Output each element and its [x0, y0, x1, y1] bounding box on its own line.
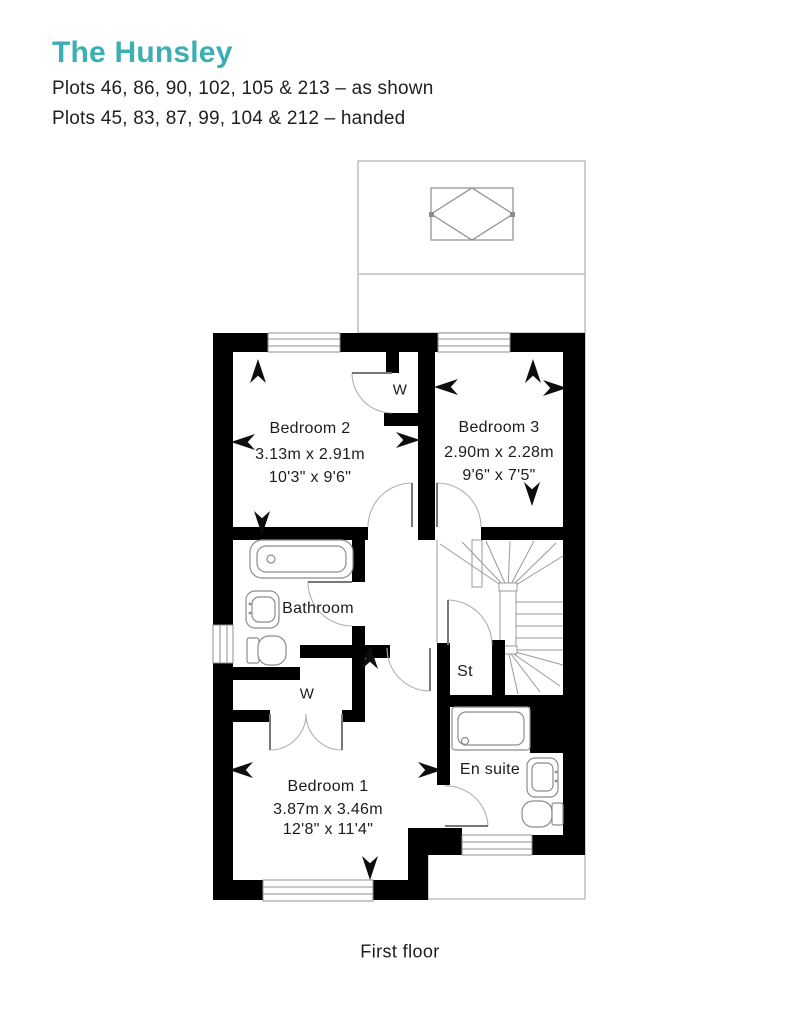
ensuite-toilet-icon: [522, 801, 563, 827]
ensuite-sink-icon: [527, 758, 558, 797]
storage-label: St: [457, 663, 473, 681]
bedroom1-imperial: 12'8" x 11'4": [283, 821, 373, 839]
bedroom2-window: [268, 333, 340, 352]
bedroom2-label: Bedroom 2: [270, 420, 351, 438]
wardrobe-top-label: W: [393, 382, 407, 399]
bathroom-side-window: [213, 625, 233, 663]
floor-plan-svg: [0, 0, 800, 1036]
bathroom-label: Bathroom: [282, 600, 354, 618]
bedroom3-metric: 2.90m x 2.28m: [444, 444, 554, 462]
bathroom-sink-icon: [246, 591, 279, 628]
bedroom3-imperial: 9'6" x 7'5": [462, 467, 535, 485]
bedroom3-window: [438, 333, 510, 352]
bathroom-toilet-icon: [247, 636, 286, 665]
bedroom1-metric: 3.87m x 3.46m: [273, 801, 383, 819]
bedroom3-label: Bedroom 3: [459, 419, 540, 437]
ensuite-label: En suite: [460, 761, 520, 779]
bedroom2-metric: 3.13m x 2.91m: [255, 446, 365, 464]
bedroom1-window: [263, 880, 373, 901]
floor-caption: First floor: [360, 942, 439, 963]
ensuite-window: [462, 835, 532, 855]
bath-tub-icon: [250, 540, 353, 578]
wardrobe-bottom-label: W: [300, 686, 314, 703]
rooflight-icon: [429, 188, 515, 240]
bedroom1-label: Bedroom 1: [288, 778, 369, 796]
bedroom2-imperial: 10'3" x 9'6": [269, 469, 351, 487]
shower-icon: [452, 707, 530, 750]
